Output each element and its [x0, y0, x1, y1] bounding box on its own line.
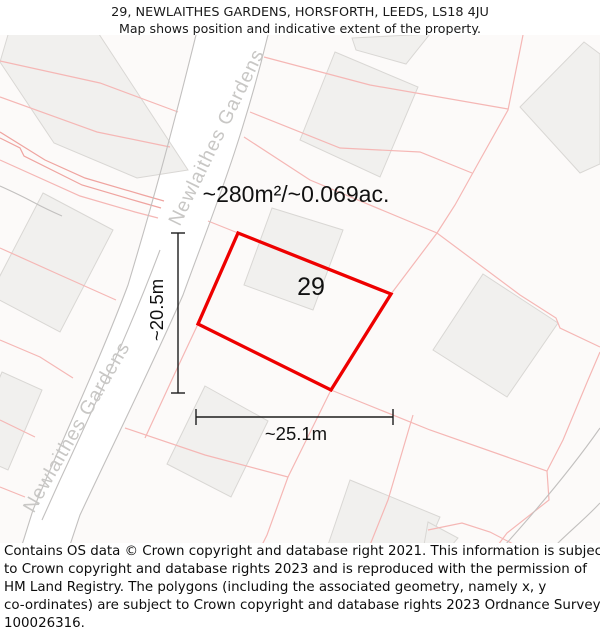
map-container: Newlaithes Gardens Newlaithes Gardens 29… — [0, 35, 600, 543]
copyright-line: 100026316. — [4, 615, 600, 633]
copyright-notice: Contains OS data © Crown copyright and d… — [4, 543, 600, 633]
copyright-line: to Crown copyright and database rights 2… — [4, 561, 600, 579]
copyright-line: co-ordinates) are subject to Crown copyr… — [4, 597, 600, 615]
plot-area-label: ~280m²/~0.069ac. — [203, 181, 390, 207]
property-address-title: 29, NEWLAITHES GARDENS, HORSFORTH, LEEDS… — [0, 0, 600, 20]
dimension-horizontal-label: ~25.1m — [265, 423, 327, 444]
plot-number-label: 29 — [297, 273, 325, 301]
property-map: Newlaithes Gardens Newlaithes Gardens 29… — [0, 35, 600, 543]
dimension-vertical-label: ~20.5m — [146, 279, 167, 341]
map-subtitle: Map shows position and indicative extent… — [0, 20, 600, 36]
header: 29, NEWLAITHES GARDENS, HORSFORTH, LEEDS… — [0, 0, 600, 36]
copyright-line: HM Land Registry. The polygons (includin… — [4, 579, 600, 597]
copyright-line: Contains OS data © Crown copyright and d… — [4, 543, 600, 561]
